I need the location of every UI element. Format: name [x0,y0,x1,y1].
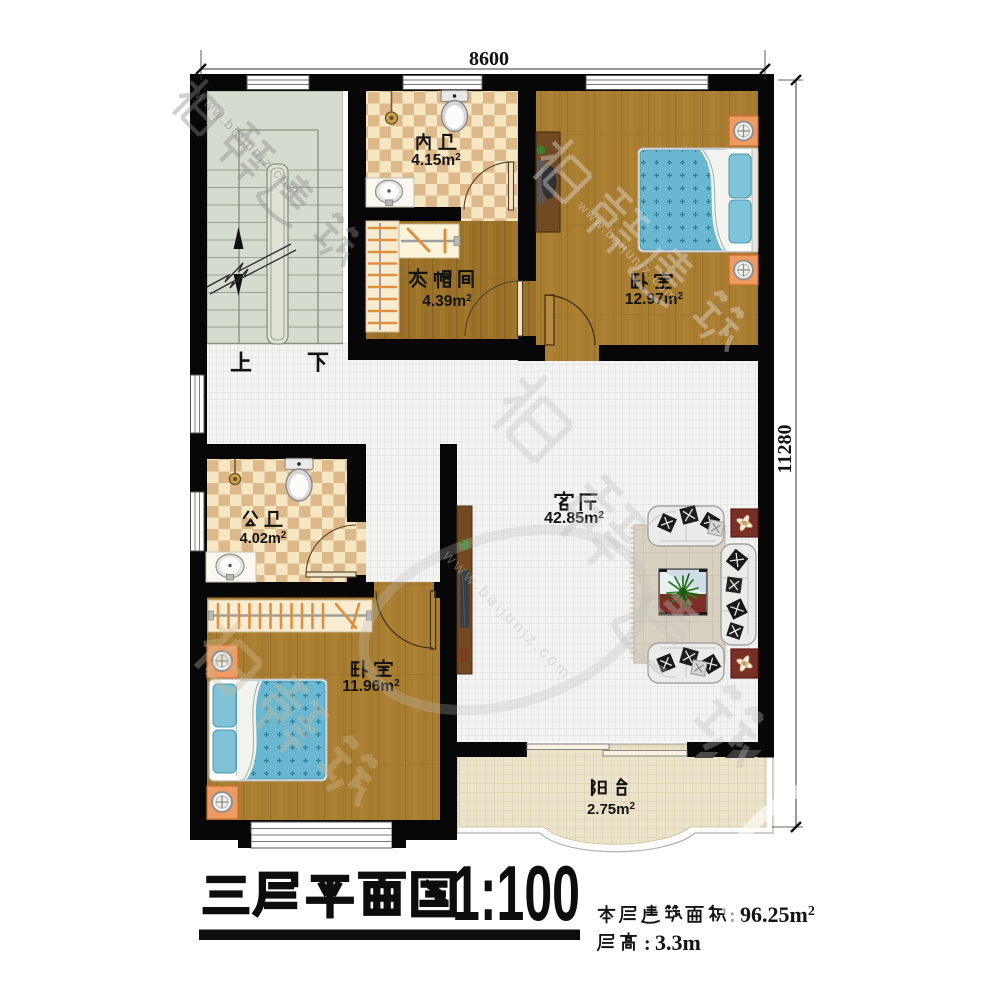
svg-text:1:100: 1:100 [452,849,580,937]
svg-text:96.25m2: 96.25m2 [740,902,815,927]
svg-text:4.02m2: 4.02m2 [240,530,287,547]
svg-text:2.75m2: 2.75m2 [587,801,636,818]
svg-text:8600: 8600 [469,48,509,70]
svg-text::: : [644,933,651,955]
svg-text:3.3m: 3.3m [655,930,701,955]
svg-text:4.15m2: 4.15m2 [411,152,461,169]
svg-text:4.39m2: 4.39m2 [422,293,472,310]
svg-text:11280: 11280 [774,425,796,474]
